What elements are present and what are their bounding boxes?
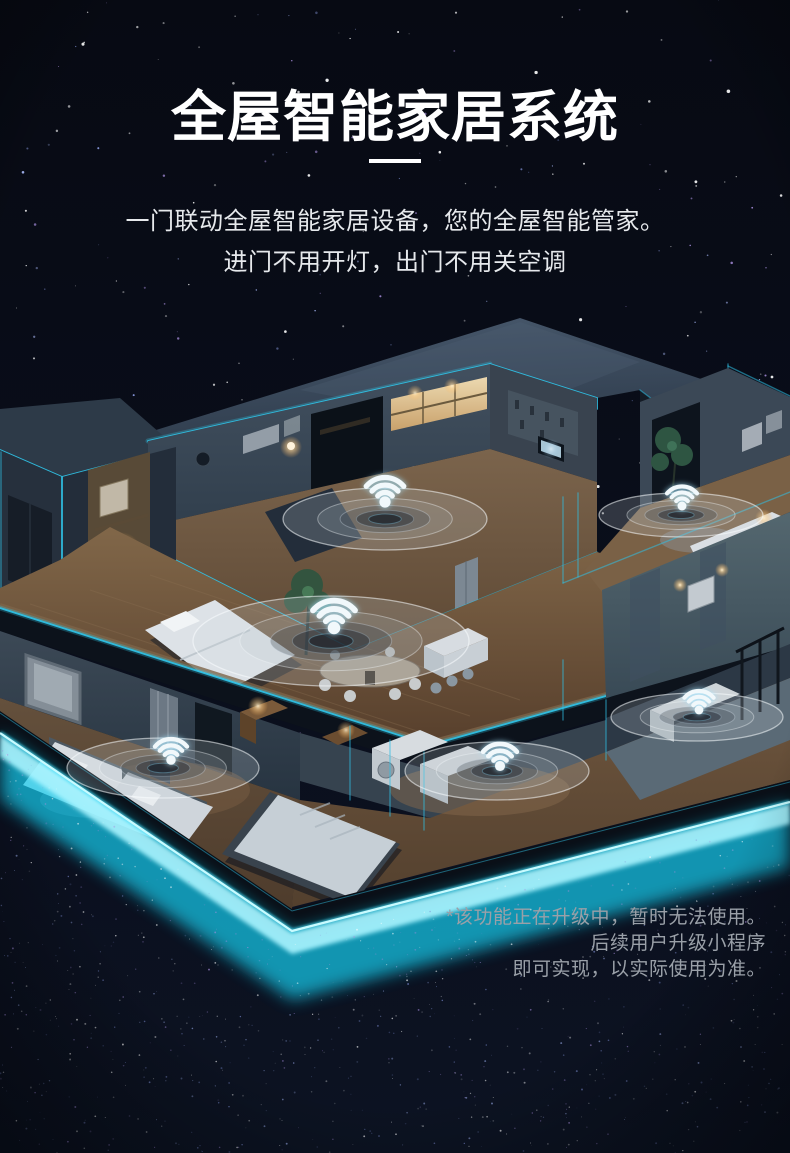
subtitle: 一门联动全屋智能家居设备，您的全屋智能管家。 进门不用开灯，出门不用关空调 — [0, 201, 790, 283]
disclaimer-line-2: 后续用户升级小程序 — [446, 931, 766, 957]
smart-home-poster: 全屋智能家居系统 一门联动全屋智能家居设备，您的全屋智能管家。 进门不用开灯，出… — [0, 0, 790, 1153]
disclaimer: *该功能正在升级中，暂时无法使用。 后续用户升级小程序 即可实现，以实际使用为准… — [446, 905, 766, 983]
title-divider — [369, 159, 421, 163]
subtitle-line-2: 进门不用开灯，出门不用关空调 — [0, 242, 790, 283]
subtitle-line-1: 一门联动全屋智能家居设备，您的全屋智能管家。 — [0, 201, 790, 242]
disclaimer-line-1: *该功能正在升级中，暂时无法使用。 — [446, 905, 766, 931]
disclaimer-line-3: 即可实现，以实际使用为准。 — [446, 957, 766, 983]
page-title: 全屋智能家居系统 — [0, 72, 790, 152]
